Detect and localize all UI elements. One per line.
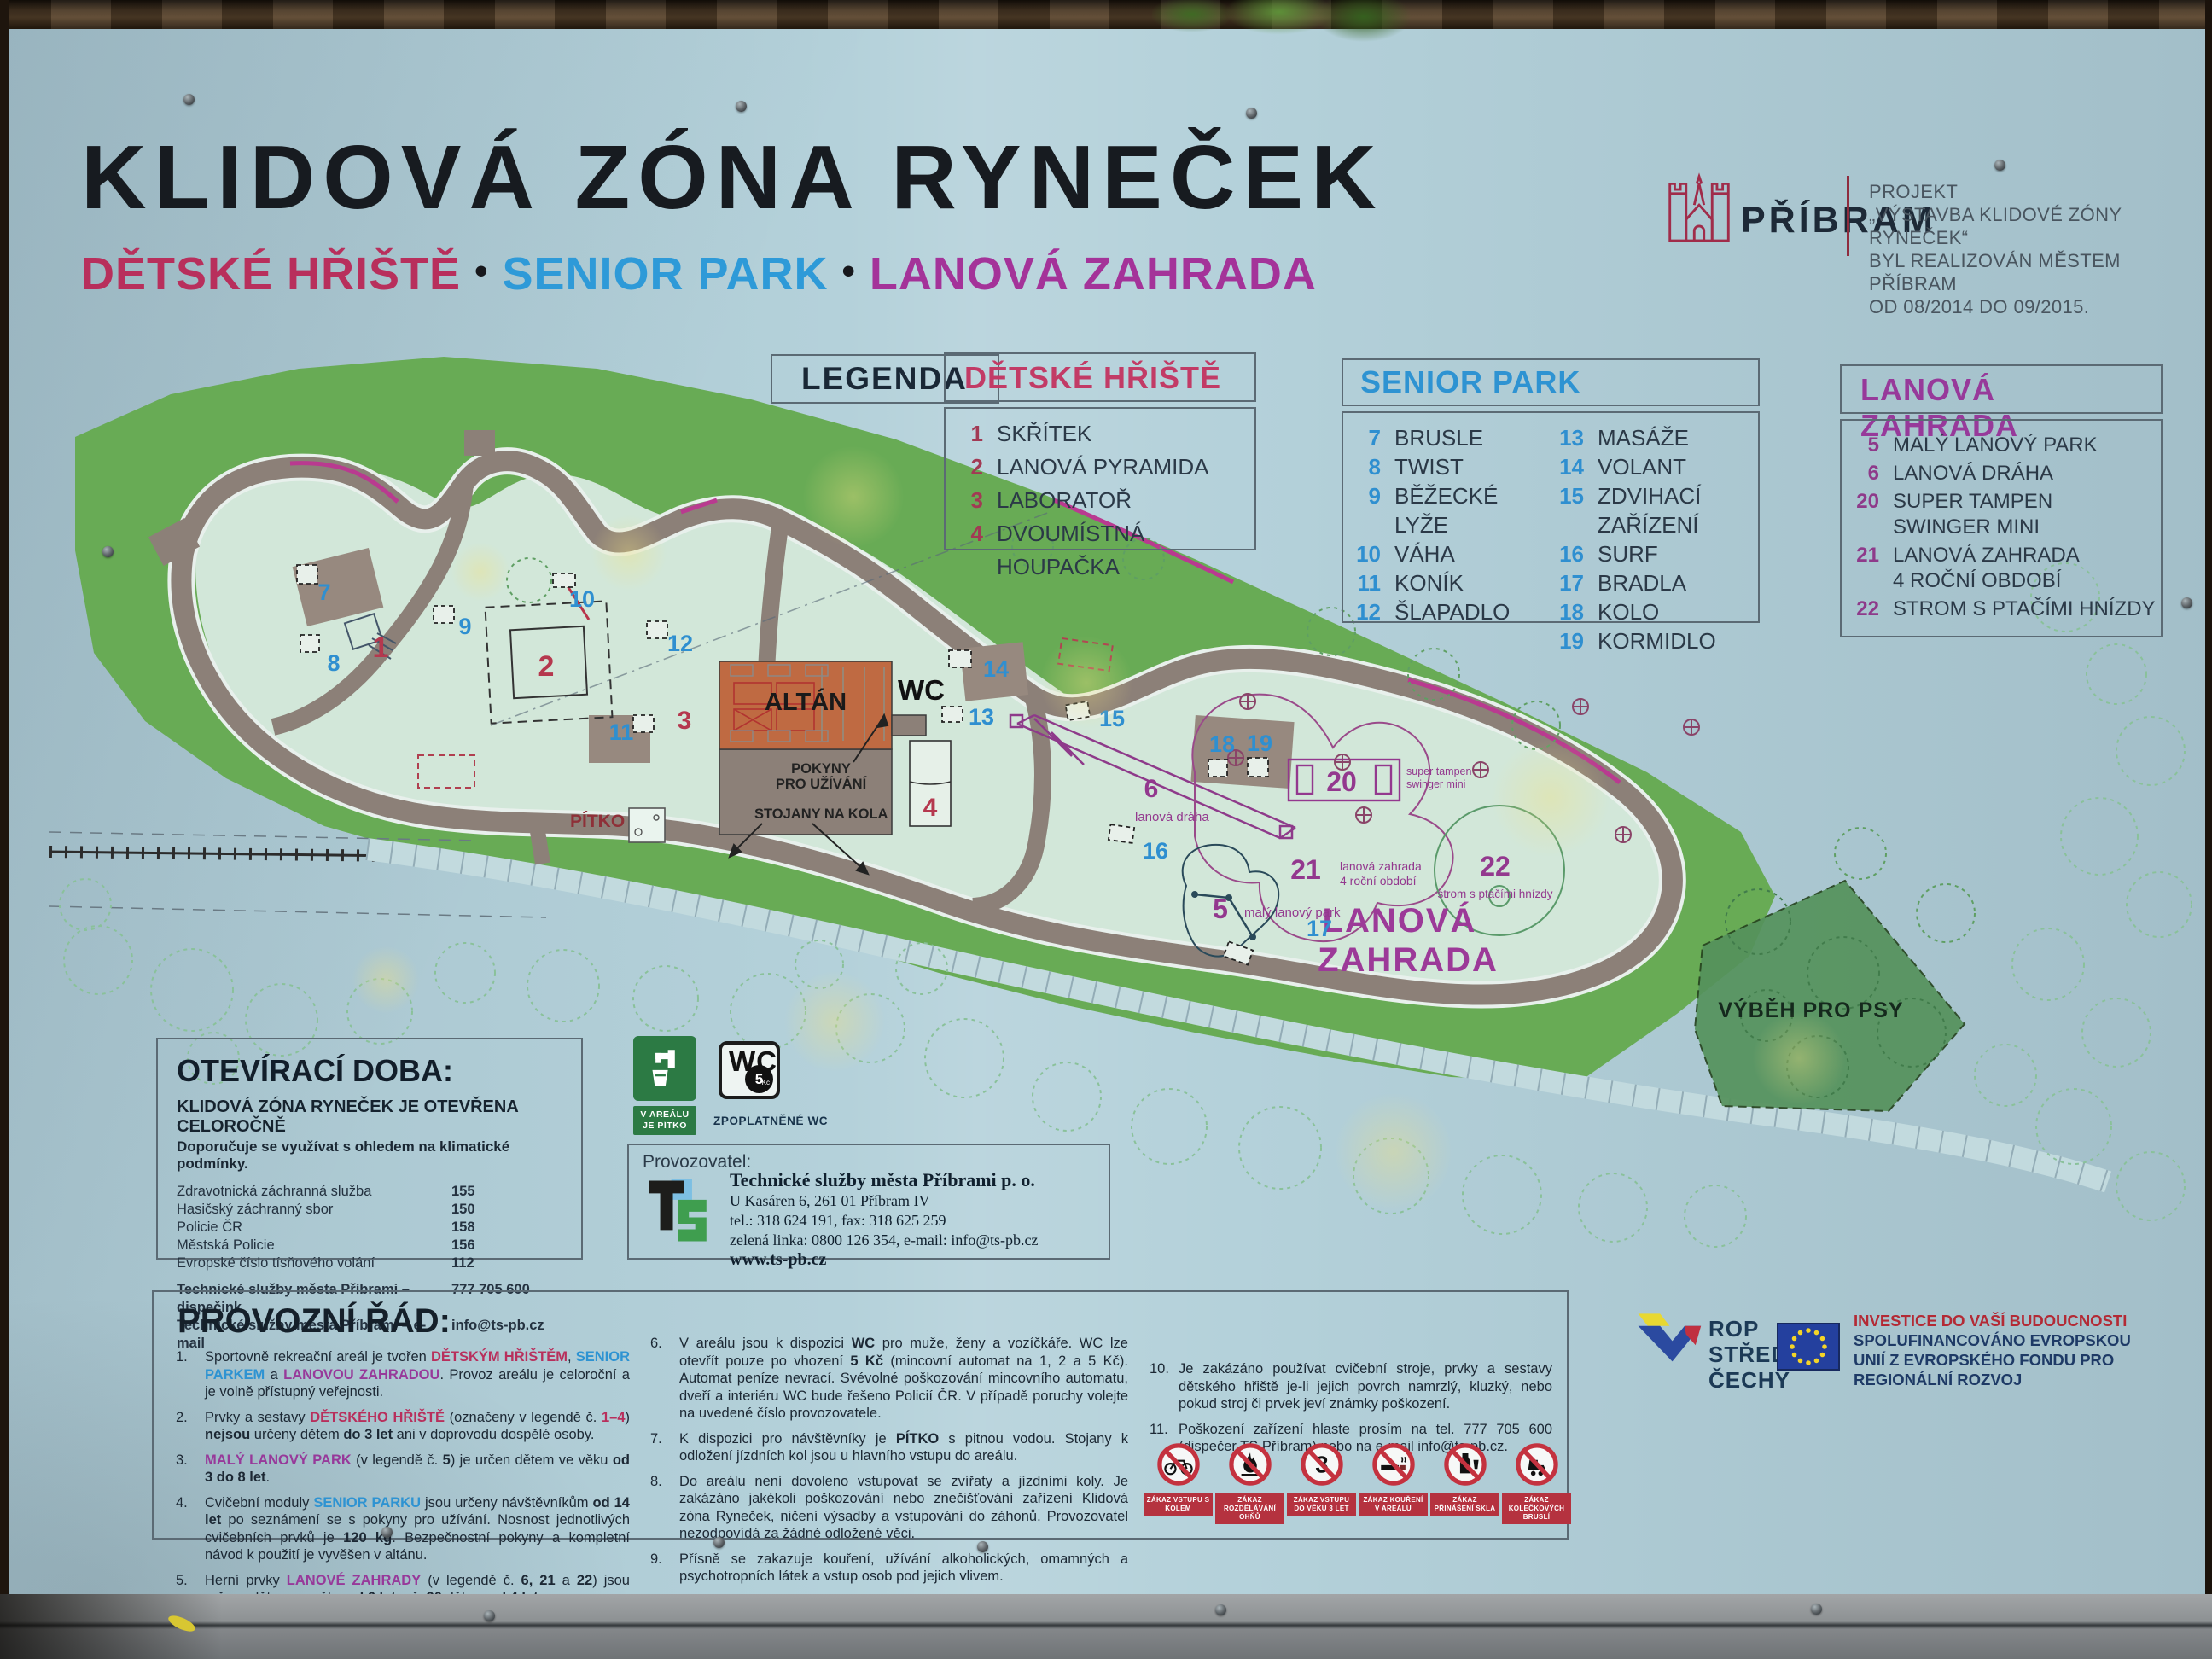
legend-item-line: MASÁŽE (1598, 423, 1689, 452)
legend-item-number: 14 (1546, 452, 1584, 481)
map-marker-17: 17 (1307, 916, 1332, 941)
eu-star (1806, 1360, 1811, 1365)
rule-number: 1. (176, 1348, 205, 1401)
rule-segment: určeny dětem (250, 1427, 343, 1442)
map-marker-19: 19 (1247, 731, 1272, 756)
opening-hours-line1: KLIDOVÁ ZÓNA RYNEČEK JE OTEVŘENA CELOROČ… (177, 1097, 562, 1137)
info-row: Hasičský záchranný sbor150 (177, 1201, 562, 1219)
screw (2181, 597, 2192, 608)
rule-segment: nejsou (205, 1427, 250, 1442)
rule-segment: Cvičební moduly (205, 1495, 313, 1511)
altan-label: ALTÁN (765, 687, 847, 716)
eu-funding-note: INVESTICE DO VAŠÍ BUDOUCNOSTI SPOLUFINAN… (1854, 1311, 2131, 1389)
info-row-value: 155 (451, 1183, 475, 1201)
eu-star (1822, 1344, 1827, 1349)
legend-lanova-header: LANOVÁ ZAHRADA (1840, 364, 2163, 414)
rule-item: 1.Sportovně rekreační areál je tvořen DĚ… (176, 1348, 630, 1401)
rules-column-1: 1.Sportovně rekreační areál je tvořen DĚ… (176, 1348, 630, 1615)
legend-item-label: SURF (1598, 539, 1658, 568)
planting-marker (1240, 694, 1255, 709)
rules-column-2: 6.V areálu jsou k dispozici WC pro muže,… (650, 1335, 1128, 1593)
info-row-value: 112 (451, 1254, 474, 1272)
map-marker-16: 16 (1143, 838, 1168, 864)
info-row-label: Městská Policie (177, 1237, 451, 1254)
rule-segment: jsou určeny návštěvníkům (421, 1495, 592, 1511)
legend-item: 1SKŘÍTEK (946, 417, 1254, 451)
legend-item-label: MALÝ LANOVÝ PARK (1893, 433, 2098, 458)
rule-segment: a (265, 1367, 283, 1382)
rule-number: 3. (176, 1452, 205, 1487)
dog-run-label: VÝBĚH PRO PSY (1718, 997, 1903, 1022)
legend-item: 17BRADLA (1546, 568, 1758, 597)
tree-outline (1463, 1155, 1541, 1234)
opening-hours-title: OTEVÍRACÍ DOBA: (177, 1053, 562, 1089)
wc-label: WC (898, 674, 945, 706)
legend-item-number: 1 (946, 417, 983, 451)
rule-segment: DĚTSKÝM HŘIŠTĚM (431, 1349, 568, 1365)
rule-segment: (označeny v legendě č. (445, 1410, 602, 1425)
legend-item-number: 11 (1343, 568, 1381, 597)
planting-marker (1684, 719, 1699, 735)
rule-segment: 5 Kč (850, 1353, 883, 1369)
map-marker-21: 21 (1290, 854, 1321, 885)
rule-segment: 6, 21 (521, 1573, 556, 1588)
tree-outline (795, 940, 843, 988)
tree-outline (1239, 1107, 1321, 1189)
map-marker-22: 22 (1480, 851, 1511, 882)
information-board: ALTÁN WC POKYNY PRO UŽÍVÁNÍ STOJANY NA K… (0, 0, 2212, 1659)
rule-segment: LANOVÉ ZAHRADY (287, 1573, 421, 1588)
tree-outline (2127, 872, 2192, 937)
rule-segment: a (556, 1573, 577, 1588)
info-row: Městská Policie156 (177, 1237, 562, 1254)
rule-segment: K dispozici pro návštěvníky je (679, 1431, 896, 1447)
swinger-label-1: super tampen (1406, 765, 1471, 777)
screw (381, 1527, 393, 1538)
no-glass-icon (1430, 1442, 1499, 1491)
legend-item: 21LANOVÁ ZAHRADA4 ROČNÍ OBDOBÍ (1842, 543, 2161, 594)
rule-item: 10.Je zakázáno používat cvičební stroje,… (1150, 1360, 1552, 1413)
screw (1811, 1604, 1822, 1615)
legend-item: 9BĚŽECKÉ LYŽE (1343, 481, 1546, 539)
screw (736, 101, 747, 112)
map-marker-4: 4 (923, 794, 938, 822)
planting-marker (1615, 827, 1631, 842)
legend-item-number: 5 (1842, 433, 1879, 458)
operator-address: U Kasáren 6, 261 01 Příbram IV (730, 1191, 1038, 1211)
map-marker-3: 3 (678, 707, 692, 735)
tree-outline (1975, 1045, 2036, 1106)
legend-item-label: BRADLA (1598, 568, 1686, 597)
wood-frame-top (0, 0, 2212, 29)
rule-segment: ) (626, 1410, 631, 1425)
legend-detske-title: DĚTSKÉ HŘIŠTĚ (946, 354, 1254, 396)
map-marker-20: 20 (1326, 766, 1357, 797)
legend-item-line: BRADLA (1598, 568, 1686, 597)
tree-outline (1132, 1089, 1207, 1164)
info-row: Evropské číslo tísňového volání112 (177, 1254, 562, 1272)
info-row-value: 158 (451, 1219, 475, 1237)
legend-item-number: 22 (1842, 597, 1879, 622)
tree-outline (2116, 1152, 2185, 1220)
planting-marker (1573, 699, 1588, 714)
legend-item-number: 18 (1546, 597, 1584, 626)
map-marker-8: 8 (327, 650, 340, 676)
rule-segment: Do areálu není dovoleno vstupovat se zví… (679, 1474, 1128, 1542)
legend-item-line: KOLO (1598, 597, 1659, 626)
tree-outline (2082, 998, 2151, 1067)
screw (1215, 1604, 1226, 1615)
planting-marker (1473, 762, 1488, 777)
wc-icon: WC 5 Kč (719, 1041, 780, 1099)
rule-segment: Prvky a sestavy (205, 1410, 310, 1425)
legend-item-label: ŠLAPADLO (1394, 597, 1510, 626)
subtitle-dot: • (829, 250, 870, 292)
rule-text: K dispozici pro návštěvníky je PÍTKO s p… (679, 1430, 1128, 1465)
wc-label: ZPOPLATNĚNÉ WC (713, 1115, 828, 1127)
legend-item: 5MALÝ LANOVÝ PARK (1842, 433, 2161, 458)
rule-item: 2.Prvky a sestavy DĚTSKÉHO HŘIŠTĚ (označ… (176, 1409, 630, 1444)
eu-funding-line: UNIÍ Z EVROPSKÉHO FONDU PRO (1854, 1350, 2131, 1370)
legend-senior-header: SENIOR PARK (1342, 358, 1760, 406)
rule-item: 7.K dispozici pro návštěvníky je PÍTKO s… (650, 1430, 1128, 1465)
tree-outline (1917, 884, 1975, 942)
railway-line (49, 852, 401, 856)
legend-item: 22STROM S PTAČÍMI HNÍZDY (1842, 597, 2161, 622)
subtitle-senior: SENIOR PARK (502, 248, 828, 300)
info-row-label: Zdravotnická záchranná služba (177, 1183, 451, 1201)
tree-outline (731, 974, 806, 1049)
rule-text: Prvky a sestavy DĚTSKÉHO HŘIŠTĚ (označen… (205, 1409, 630, 1444)
legend-lanova-list: 5MALÝ LANOVÝ PARK6LANOVÁ DRÁHA20SUPER TA… (1840, 419, 2163, 637)
eu-star (1790, 1344, 1795, 1349)
legend-item-label: LANOVÁ PYRAMIDA (997, 451, 1209, 484)
project-line: OD 08/2014 DO 09/2015. (1869, 295, 2212, 318)
legend-item-number: 4 (946, 517, 983, 584)
no-bicycle-icon (1144, 1442, 1213, 1491)
legend-item: 15ZDVIHACÍ ZAŘÍZENÍ (1546, 481, 1758, 539)
tree-outline (1835, 828, 1886, 879)
rop-logo-icon (1630, 1304, 1705, 1378)
legend-senior-col1: 7BRUSLE8TWIST9BĚŽECKÉ LYŽE10VÁHA11KONÍK1… (1343, 423, 1546, 621)
info-row-label: Evropské číslo tísňového volání (177, 1254, 451, 1272)
drinking-fountain-icon (633, 1036, 696, 1101)
legend-item-line: SWINGER MINI (1893, 515, 2052, 540)
eu-funding-line: SPOLUFINANCOVÁNO EVROPSKOU (1854, 1330, 2131, 1350)
rule-segment: Sportovně rekreační areál je tvořen (205, 1349, 431, 1365)
rule-segment: WC (852, 1336, 876, 1351)
rule-segment: 5 (443, 1452, 451, 1468)
rule-segment: (v legendě č. (421, 1573, 521, 1588)
map-marker-12: 12 (667, 631, 693, 656)
legend-item: 2LANOVÁ PYRAMIDA (946, 451, 1254, 484)
legend-item-line: MALÝ LANOVÝ PARK (1893, 433, 2098, 458)
legend-item: 10VÁHA (1343, 539, 1546, 568)
info-row-value: 150 (451, 1201, 475, 1219)
legend-item-number: 20 (1842, 489, 1879, 540)
rule-text: Cvičební moduly SENIOR PARKU jsou určeny… (205, 1494, 630, 1564)
legend-item-line: KONÍK (1394, 568, 1464, 597)
survey-line (49, 906, 546, 917)
tree-outline (2036, 1089, 2111, 1164)
rule-number: 4. (176, 1494, 205, 1564)
legend-item-line: 4 ROČNÍ OBDOBÍ (1893, 568, 2080, 594)
emergency-numbers: Zdravotnická záchranná služba155Hasičský… (177, 1183, 562, 1272)
legend-detske-list: 1SKŘÍTEK2LANOVÁ PYRAMIDA3LABORATOŘ4DVOUM… (944, 407, 1256, 550)
legend-item-label: VOLANT (1598, 452, 1686, 481)
rule-segment: MALÝ LANOVÝ PARK (205, 1452, 352, 1468)
rules-title: PROVOZNÍ ŘÁD: (178, 1302, 451, 1341)
map-marker-11: 11 (609, 719, 634, 745)
rule-text: MALÝ LANOVÝ PARK (v legendě č. 5) je urč… (205, 1452, 630, 1487)
legend-item-line: VOLANT (1598, 452, 1686, 481)
legend-item-line: DVOUMÍSTNÁ HOUPAČKA (997, 517, 1254, 584)
legend-item-label: STROM S PTAČÍMI HNÍZDY (1893, 597, 2156, 622)
legend-item-label: LANOVÁ DRÁHA (1893, 461, 2053, 486)
rule-segment: DĚTSKÉHO HŘIŠTĚ (310, 1410, 445, 1425)
legend-item-number: 12 (1343, 597, 1381, 626)
rule-item: 8.Do areálu není dovoleno vstupovat se z… (650, 1473, 1128, 1543)
prohibition-sign-label: ZÁKAZ VSTUPU DO VĚKU 3 LET (1287, 1493, 1356, 1516)
legend-senior-col2: 13MASÁŽE14VOLANT15ZDVIHACÍ ZAŘÍZENÍ16SUR… (1546, 423, 1758, 621)
rule-item: 6.V areálu jsou k dispozici WC pro muže,… (650, 1335, 1128, 1423)
legend-item-line: ŠLAPADLO (1394, 597, 1510, 626)
rule-text: Sportovně rekreační areál je tvořen DĚTS… (205, 1348, 630, 1401)
rule-number: 6. (650, 1335, 679, 1423)
legend-item-number: 17 (1546, 568, 1584, 597)
legend-item-label: LABORATOŘ (997, 484, 1132, 517)
subtitle-lanova: LANOVÁ ZAHRADA (870, 248, 1317, 300)
rule-number: 8. (650, 1473, 679, 1543)
screw (1994, 160, 2005, 171)
legend-item: 18KOLO (1546, 597, 1758, 626)
legend-item-line: VÁHA (1394, 539, 1455, 568)
legend-item-line: TWIST (1394, 452, 1464, 481)
rule-segment: SENIOR PARKU (313, 1495, 421, 1511)
tree-outline (2116, 717, 2185, 785)
operator-name: Technické služby města Příbrami p. o. (730, 1169, 1038, 1191)
prohibition-sign: ZÁKAZ KOLEČKOVÝCH BRUSLÍ (1502, 1442, 1571, 1524)
zipline-label: lanová dráha (1135, 810, 1209, 824)
map-marker-15: 15 (1099, 706, 1125, 731)
planting-marker (1356, 807, 1371, 823)
rule-number: 2. (176, 1409, 205, 1444)
legend-senior-title: SENIOR PARK (1343, 360, 1758, 400)
legend-item: 14VOLANT (1546, 452, 1758, 481)
rule-segment: . (266, 1470, 271, 1485)
legend-detske-header: DĚTSKÉ HŘIŠTĚ (944, 352, 1256, 402)
legend-item-line: SURF (1598, 539, 1658, 568)
eu-star (1814, 1330, 1819, 1336)
legend-item-line: ZDVIHACÍ ZAŘÍZENÍ (1598, 481, 1758, 539)
bike-racks-label: STOJANY NA KOLA (754, 806, 888, 822)
project-line: BYL REALIZOVÁN MĚSTEM PŘÍBRAM (1869, 249, 2212, 295)
legend-item-number: 10 (1343, 539, 1381, 568)
legend-item-number: 9 (1343, 481, 1381, 539)
project-note: PROJEKT „VÝSTAVBA KLIDOVÉ ZÓNY RYNEČEK“ … (1869, 180, 2212, 318)
legend-item: 3LABORATOŘ (946, 484, 1254, 517)
eu-star (1792, 1353, 1797, 1358)
prohibition-sign-label: ZÁKAZ ROZDĚLÁVÁNÍ OHŇŮ (1215, 1493, 1284, 1524)
wood-frame-right (2205, 0, 2212, 1659)
prohibition-sign-label: ZÁKAZ KOUŘENÍ V AREÁLU (1359, 1493, 1428, 1516)
ts-logo-icon (643, 1174, 716, 1252)
eu-funding-line: REGIONÁLNÍ ROZVOJ (1854, 1370, 2131, 1389)
tree-foliage (1152, 0, 1417, 48)
eu-star (1792, 1336, 1797, 1342)
screw (102, 546, 114, 557)
screw (484, 1610, 495, 1621)
rope-garden-label-2: ZAHRADA (1318, 941, 1499, 979)
legend-item-number: 7 (1343, 423, 1381, 452)
screw (183, 94, 195, 105)
info-row-label: Policie ČR (177, 1219, 451, 1237)
map-marker-1: 1 (373, 632, 389, 664)
opening-hours-box: OTEVÍRACÍ DOBA: KLIDOVÁ ZÓNA RYNEČEK JE … (156, 1038, 583, 1260)
legend-item-line: SUPER TAMPEN (1893, 489, 2052, 515)
tree-outline (925, 1019, 1004, 1097)
rule-text: Přísně se zakazuje kouření, užívání alko… (679, 1551, 1128, 1586)
legend-item: 16SURF (1546, 539, 1758, 568)
fountain-label: PÍTKO (570, 812, 625, 831)
legend-item-line: SKŘÍTEK (997, 417, 1091, 451)
rule-segment: PÍTKO (896, 1431, 939, 1447)
page-subtitle: DĚTSKÉ HŘIŠTĚ•SENIOR PARK•LANOVÁ ZAHRADA (81, 247, 1317, 300)
prohibition-sign: 3ZÁKAZ VSTUPU DO VĚKU 3 LET (1287, 1442, 1356, 1524)
map-marker-5: 5 (1213, 894, 1228, 924)
eu-funding-line: INVESTICE DO VAŠÍ BUDOUCNOSTI (1854, 1311, 2131, 1330)
wc-fee-badge: 5 Kč (745, 1065, 773, 1093)
brand-divider (1847, 176, 1849, 256)
prohibition-signs: ZÁKAZ VSTUPU S KOLEMZÁKAZ ROZDĚLÁVÁNÍ OH… (1144, 1442, 1571, 1524)
rule-text: Do areálu není dovoleno vstupovat se zví… (679, 1473, 1128, 1543)
prohibition-sign-label: ZÁKAZ VSTUPU S KOLEM (1144, 1493, 1213, 1516)
operator-box: Provozovatel: Technické služby města Pří… (627, 1144, 1110, 1260)
rules-box: PROVOZNÍ ŘÁD: 1.Sportovně rekreační areá… (152, 1290, 1569, 1540)
wood-frame-bottom (0, 1594, 2212, 1659)
legend-item-label: KORMIDLO (1598, 626, 1716, 655)
legend-item-number: 2 (946, 451, 983, 484)
rule-number: 7. (650, 1430, 679, 1465)
tree-outline (836, 994, 905, 1062)
legend-item-label: VÁHA (1394, 539, 1455, 568)
eu-star (1798, 1359, 1803, 1364)
map-marker-18: 18 (1209, 731, 1235, 757)
legend-item-label: SKŘÍTEK (997, 417, 1091, 451)
legend-item-label: MASÁŽE (1598, 423, 1689, 452)
legend-item-label: KOLO (1598, 597, 1659, 626)
legend-item: 11KONÍK (1343, 568, 1546, 597)
legend-item-label: LANOVÁ ZAHRADA4 ROČNÍ OBDOBÍ (1893, 543, 2080, 594)
legend-item-line: LANOVÁ PYRAMIDA (997, 451, 1209, 484)
tree-outline (1579, 1173, 1647, 1242)
rule-segment: , (568, 1349, 576, 1365)
rule-number: 9. (650, 1551, 679, 1586)
prohibition-sign-label: ZÁKAZ PŘINÁŠENÍ SKLA (1430, 1493, 1499, 1516)
eu-flag-icon (1777, 1323, 1840, 1375)
rule-segment: do 3 let (343, 1427, 393, 1442)
pokyny-label-1: POKYNY (791, 761, 851, 777)
map-marker-10: 10 (569, 586, 595, 612)
legend-item-number: 15 (1546, 481, 1584, 539)
rule-segment: ) je určen dětem ve věku (451, 1452, 613, 1468)
legend-item-number: 3 (946, 484, 983, 517)
tree-outline (1353, 1138, 1429, 1214)
prohibition-sign: ZÁKAZ VSTUPU S KOLEM (1144, 1442, 1213, 1524)
pokyny-label-2: PRO UŽÍVÁNÍ (776, 776, 867, 792)
legend-item-number: 8 (1343, 452, 1381, 481)
screw (713, 1537, 725, 1548)
rule-segment: Herní prvky (205, 1573, 287, 1588)
legend-item-line: BĚŽECKÉ LYŽE (1394, 481, 1546, 539)
rope-garden-label-1: LANOVÁ (1323, 901, 1477, 940)
legend-item-number: 6 (1842, 461, 1879, 486)
legend-senior-list: 7BRUSLE8TWIST9BĚŽECKÉ LYŽE10VÁHA11KONÍK1… (1342, 411, 1760, 623)
four-seasons-label-2: 4 roční období (1340, 874, 1417, 888)
tree-outline (435, 943, 495, 1003)
wc-fee-unit: Kč (762, 1079, 770, 1086)
rule-text: V areálu jsou k dispozici WC pro muže, ž… (679, 1335, 1128, 1423)
legend-item-label: DVOUMÍSTNÁ HOUPAČKA (997, 517, 1254, 584)
map-marker-14: 14 (983, 656, 1009, 682)
rule-segment: Přísně se zakazuje kouření, užívání alko… (679, 1551, 1128, 1585)
prohibition-sign: ZÁKAZ ROZDĚLÁVÁNÍ OHŇŮ (1215, 1442, 1284, 1524)
fountain-map-marker (629, 808, 665, 842)
subtitle-detske: DĚTSKÉ HŘIŠTĚ (81, 248, 461, 300)
legend-item: 4DVOUMÍSTNÁ HOUPAČKA (946, 517, 1254, 584)
operator-green-line: zelená linka: 0800 126 354, e-mail: info… (730, 1231, 1038, 1250)
no-under-3-icon: 3 (1287, 1442, 1356, 1491)
prohibition-sign: ZÁKAZ KOUŘENÍ V AREÁLU (1359, 1442, 1428, 1524)
eu-star (1814, 1359, 1819, 1364)
no-rollerblades-icon (1502, 1442, 1571, 1491)
legend-item: 12ŠLAPADLO (1343, 597, 1546, 626)
project-line: „VÝSTAVBA KLIDOVÉ ZÓNY RYNEČEK“ (1869, 203, 2212, 249)
eu-star (1820, 1353, 1825, 1358)
page-title: KLIDOVÁ ZÓNA RYNEČEK (81, 126, 1384, 230)
legend-item-label: ZDVIHACÍ ZAŘÍZENÍ (1598, 481, 1758, 539)
legend-item-label: KONÍK (1394, 568, 1464, 597)
info-row: Policie ČR158 (177, 1219, 562, 1237)
rule-segment: 1–4 (602, 1410, 626, 1425)
map-marker-9: 9 (458, 614, 471, 639)
legend-item-number: 21 (1842, 543, 1879, 594)
pribram-emblem-icon (1665, 166, 1733, 253)
legend-item-line: STROM S PTAČÍMI HNÍZDY (1893, 597, 2156, 622)
legend-item: 20SUPER TAMPENSWINGER MINI (1842, 489, 2161, 540)
tree-outline (527, 950, 599, 1022)
legend-item-label: BRUSLE (1394, 423, 1483, 452)
info-row: Zdravotnická záchranná služba155 (177, 1183, 562, 1201)
tree-outline (60, 879, 111, 930)
tree-outline (633, 966, 698, 1031)
rule-segment: V areálu jsou k dispozici (679, 1336, 852, 1351)
rule-number: 10. (1150, 1360, 1179, 1413)
drinking-fountain-label: V AREÁLU JE PÍTKO (633, 1106, 696, 1135)
legend-item-number: 16 (1546, 539, 1584, 568)
map-marker-7: 7 (317, 579, 330, 605)
eu-star (1820, 1336, 1825, 1342)
info-row-value: 156 (451, 1237, 475, 1254)
screw (977, 1541, 988, 1552)
legend-item-number: 19 (1546, 626, 1584, 655)
no-fire-icon (1215, 1442, 1284, 1491)
legend-item: 19KORMIDLO (1546, 626, 1758, 655)
four-seasons-label-1: lanová zahrada (1340, 859, 1422, 873)
rule-segment: (v legendě č. (352, 1452, 443, 1468)
legend-item-line: LANOVÁ ZAHRADA (1893, 543, 2080, 568)
rule-segment: LANOVOU ZAHRADOU (283, 1367, 439, 1382)
